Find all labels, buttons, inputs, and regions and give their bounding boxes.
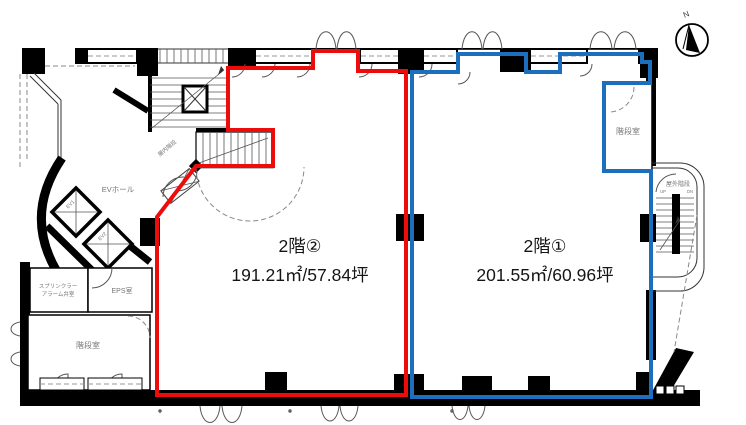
stair-room-left-label: 階段室	[76, 340, 100, 350]
floor-plan: EV1 EV2 EVホール 屋内階段	[0, 0, 746, 425]
stair-room-right-label: 階段室	[616, 126, 640, 136]
outdoor-stair-label: 屋外階段	[666, 180, 690, 188]
outdoor-stair-dn-label: DN	[687, 189, 693, 194]
ev-hall-label: EVホール	[102, 185, 135, 194]
sprinkler-room-label-1: スプリンクラー	[39, 283, 78, 290]
outdoor-staircase: 屋外階段 UP DN	[652, 163, 704, 352]
floor-plan-drawing: EV1 EV2 EVホール 屋内階段	[0, 0, 746, 425]
service-rooms: スプリンクラー アラーム弁室 EPS室 階段室	[11, 268, 152, 390]
main-staircase: 屋内階段	[150, 66, 274, 173]
inner-stair-label: 屋内階段	[156, 138, 178, 159]
elevator-1	[52, 188, 100, 236]
zone2-label: 2階②	[279, 236, 322, 256]
zone2-annotation: 2階② 191.21㎡/57.84坪	[231, 236, 368, 285]
outdoor-stair-up-label: UP	[660, 189, 666, 194]
compass-north-label: N	[682, 9, 691, 20]
zone1-annotation: 2階① 201.55㎡/60.96坪	[476, 236, 613, 285]
zone1-label: 2階①	[524, 236, 567, 256]
elevator-2	[84, 220, 132, 268]
sprinkler-room-label-2: アラーム弁室	[42, 290, 75, 298]
zone2-entrance-door	[161, 167, 304, 221]
bottom-casement-arcs	[159, 406, 485, 423]
right-stair-room: 階段室	[604, 83, 652, 172]
top-windows	[88, 48, 638, 64]
zone1-area: 201.55㎡/60.96坪	[476, 265, 613, 285]
elevator-bank: EV1 EV2 EVホール	[52, 185, 135, 268]
eps-room-label: EPS室	[111, 286, 132, 295]
compass-icon: N	[676, 9, 708, 56]
zone2-area: 191.21㎡/57.84坪	[231, 265, 368, 285]
